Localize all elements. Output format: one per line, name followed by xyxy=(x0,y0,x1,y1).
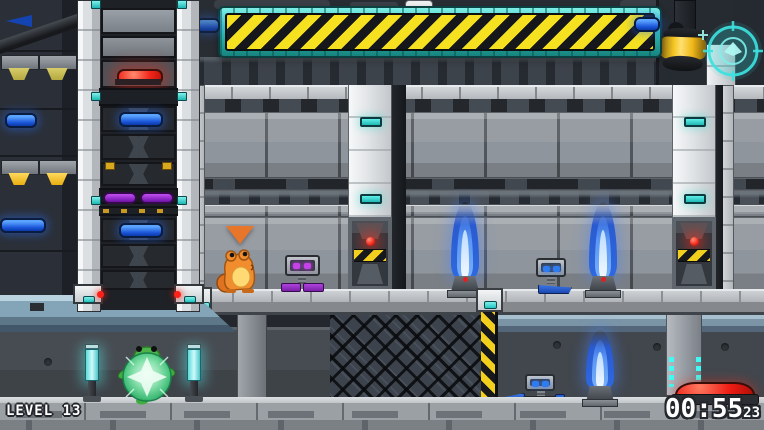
cyan-dash xyxy=(83,296,95,303)
doorway-right xyxy=(672,217,716,290)
cyan-light-bar xyxy=(360,117,382,127)
door-lower-panel xyxy=(357,264,383,284)
cyan-notch xyxy=(91,92,101,101)
gold-dots xyxy=(103,209,173,213)
ladder-brace xyxy=(101,106,176,132)
robot-foot-purple xyxy=(303,283,324,292)
cyan-notch xyxy=(177,196,187,205)
timer-fraction: 23 xyxy=(743,405,760,421)
robot-eye xyxy=(553,266,560,272)
cyan-light-bar xyxy=(684,117,706,127)
pillar-right xyxy=(672,85,716,217)
purple-mini-robot[interactable] xyxy=(281,255,324,294)
robot-head xyxy=(285,255,320,276)
lamp-bracket xyxy=(1,160,39,175)
lamp-bracket xyxy=(39,55,77,70)
red-lamp-right-door xyxy=(690,237,699,246)
post-base xyxy=(185,396,203,402)
pointer-triangle xyxy=(226,226,254,244)
robot-head xyxy=(536,258,566,277)
post-pole xyxy=(190,381,198,397)
pillar-shadow xyxy=(716,85,723,289)
wall-lamp xyxy=(1,55,37,81)
nozzle-light xyxy=(601,277,606,282)
level-label: LEVEL 13 xyxy=(6,403,81,419)
lamp-cone xyxy=(7,173,31,185)
rivet xyxy=(44,358,52,366)
cyan-light-bar xyxy=(684,194,706,204)
beam-bracket xyxy=(30,303,44,311)
ladder-girder xyxy=(99,206,178,216)
robot-foot-blue xyxy=(538,284,572,294)
cyan-notch xyxy=(91,196,101,205)
lamp-cone xyxy=(45,68,69,80)
lamp-cone xyxy=(45,173,69,185)
robot-eye xyxy=(542,381,549,387)
wall-lamp xyxy=(39,160,75,186)
robot-foot-purple xyxy=(281,283,301,292)
blue-mini-robot[interactable] xyxy=(530,258,572,294)
steel-pipe-ledge xyxy=(483,315,764,332)
jet-base xyxy=(585,290,621,298)
wall-seam xyxy=(0,250,77,252)
rivet xyxy=(553,341,561,349)
cyan-notch xyxy=(91,0,101,9)
ladder-foot xyxy=(174,284,204,304)
timer: 00:5523 xyxy=(600,394,760,424)
purple-bar xyxy=(103,192,137,204)
hazard-stripe-sign xyxy=(218,6,662,58)
green-frog-in-bubble[interactable] xyxy=(117,342,177,406)
ladder-brace xyxy=(101,162,176,186)
robot-head xyxy=(525,374,555,391)
purple-bar xyxy=(140,192,174,204)
door-lower-panel xyxy=(681,264,707,284)
ladder-girder xyxy=(99,88,178,106)
robot-screen xyxy=(530,379,550,386)
cyan-dash xyxy=(484,301,497,309)
wall-lamp xyxy=(1,160,37,186)
ladder-rail-right xyxy=(176,0,200,312)
robot-eye xyxy=(304,263,311,269)
glow-tube xyxy=(187,349,201,381)
ladder-foot xyxy=(73,284,103,304)
ladder-button-housing xyxy=(101,60,176,88)
robot-eye xyxy=(293,263,300,269)
cyan-notch xyxy=(177,92,187,101)
robot-eye xyxy=(532,381,539,387)
red-dot-light xyxy=(97,291,104,298)
blue-capsule-light xyxy=(634,17,660,32)
blue-capsule-light xyxy=(119,223,163,238)
door-hazard-strip xyxy=(678,249,710,262)
blue-capsule-light xyxy=(5,113,37,128)
cyan-light-post-right xyxy=(183,344,205,402)
ladder-brace xyxy=(101,218,176,242)
wall-seam xyxy=(0,108,77,110)
rivet xyxy=(653,343,661,351)
cyan-light-post-left xyxy=(81,344,103,402)
ladder-panel xyxy=(101,8,176,34)
ladder-rail-left xyxy=(77,0,101,312)
gold-clip xyxy=(162,162,172,170)
red-lamp-left-door xyxy=(366,237,375,246)
robot-screen xyxy=(290,260,315,271)
timer-main: 00:55 xyxy=(665,394,743,424)
cyan-dash xyxy=(184,296,196,303)
blue-capsule-light xyxy=(119,112,163,127)
pillar-left xyxy=(348,85,392,217)
wall-seam xyxy=(0,50,77,52)
orange-frog-player[interactable] xyxy=(216,248,260,294)
support-column xyxy=(237,315,267,400)
post-pole xyxy=(88,381,96,397)
pillar-shadow xyxy=(392,85,406,289)
robot-eye xyxy=(543,266,550,272)
hazard-stripes xyxy=(225,13,655,51)
cyan-notch xyxy=(177,0,187,9)
robot-neck xyxy=(547,277,555,284)
door-hazard-strip xyxy=(354,249,386,262)
ladder-purple-row xyxy=(99,188,178,204)
red-dot-light xyxy=(174,291,181,298)
ladder-brace xyxy=(101,270,176,290)
rivet xyxy=(721,343,729,351)
lamp-cone xyxy=(7,68,31,80)
wall-edge-column-right xyxy=(722,85,734,315)
glow-tube xyxy=(85,349,99,381)
robot-screen xyxy=(541,263,561,272)
wall-seam xyxy=(0,155,77,157)
cyan-light-bar xyxy=(360,194,382,204)
ladder-brace xyxy=(101,134,176,160)
doorway-left xyxy=(348,217,392,290)
wall-lamp xyxy=(39,55,75,81)
flame-jet-platform-left xyxy=(447,202,483,297)
ladder-tower[interactable] xyxy=(77,0,200,312)
blue-glow-arrow xyxy=(6,15,32,27)
targeting-reticle-icon[interactable] xyxy=(697,15,764,85)
chain-link-fence xyxy=(330,308,483,400)
lamp-bracket xyxy=(1,55,39,70)
pole-cap xyxy=(476,288,503,312)
nozzle-light xyxy=(463,277,468,282)
flame-jet-platform-right xyxy=(585,202,621,297)
ladder-brace xyxy=(101,244,176,268)
post-base xyxy=(83,396,101,402)
blue-capsule-light xyxy=(0,218,46,233)
game-viewport: LEVEL 13 00:5523 xyxy=(0,0,764,430)
ladder-panel xyxy=(101,36,176,58)
gold-clip xyxy=(105,162,115,170)
button-base xyxy=(115,79,161,85)
lamp-bracket xyxy=(39,160,77,175)
